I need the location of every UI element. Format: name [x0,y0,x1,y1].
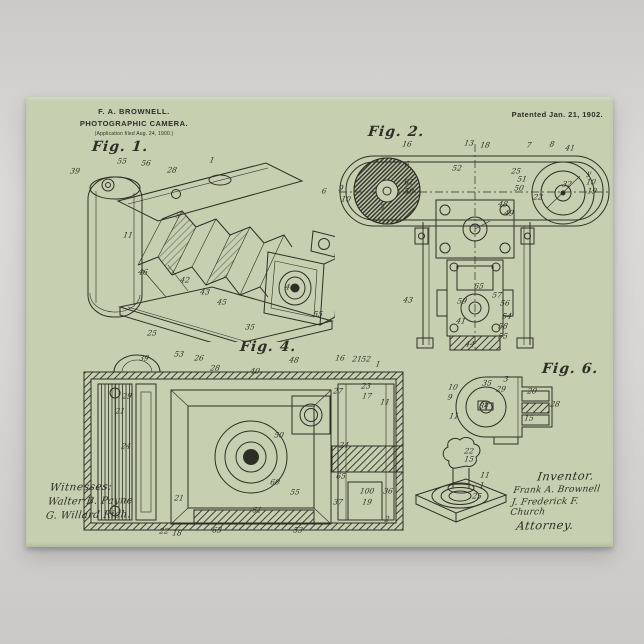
ref-numeral: 5 [175,211,181,219]
ref-numeral: 53 [293,526,304,534]
ref-numeral: 46 [138,268,149,276]
ref-numeral: 10 [341,195,352,203]
ref-numeral: 13 [464,139,475,147]
ref-numeral: 55 [290,488,301,496]
ref-numeral: 100 [359,487,375,495]
ref-numeral: 2 [384,515,390,523]
patent-date: Patented Jan. 21, 1902. [512,110,603,119]
ref-numeral: 24 [121,442,132,450]
ref-numeral: 21 [174,494,185,502]
ref-numeral: 32 [562,180,573,188]
witness-signature-2: G. Willard Rich. [45,509,132,521]
ref-numeral: 34 [479,402,490,410]
ref-numeral: 21 [115,407,126,415]
ref-numeral: 50 [404,187,415,195]
ref-numeral: 60 [270,478,281,486]
inventor-block: Inventor. Frank A. Brownell J. Frederick… [507,468,617,533]
ref-numeral: 22 [533,193,544,201]
ref-numeral: 29 [122,392,133,400]
ref-numeral: 49 [504,209,515,217]
ref-numeral: 3 [503,375,509,383]
ref-numeral: 16 [402,140,413,148]
inventor-name: F. A. BROWNELL. [54,107,214,116]
ref-numeral: 11 [480,471,491,479]
fig2-label: Fig. 2. [367,124,425,140]
ref-numeral: 37 [333,498,344,506]
ref-numeral: 25 [472,492,483,500]
ref-numeral: 6 [404,160,410,168]
ref-numeral: 51 [517,175,528,183]
ref-numeral: 20 [527,387,538,395]
ref-numeral: 22 [159,527,170,535]
ref-numeral: 17 [362,392,373,400]
ref-numeral: 56 [141,159,152,167]
ref-numeral: 18 [172,529,183,537]
ref-numeral: 28 [167,166,178,174]
application-line: (Application filed Aug. 24, 1900.) [54,131,214,137]
ref-numeral: 8 [549,140,555,148]
ref-numeral: 59 [457,297,468,305]
ref-numeral: 43 [200,288,211,296]
inventor-label: Inventor. [536,468,617,483]
ref-numeral: 24 [339,441,350,449]
ref-numeral: 35 [245,323,256,331]
witness-signature-1: Walter B. Payne [47,495,134,507]
ref-numeral: 9 [447,393,453,401]
witnesses-label: Witnesses: [49,480,136,493]
ref-numeral: 10 [586,178,597,186]
ref-numeral: 40 [285,283,296,291]
ref-numeral: 55 [117,157,128,165]
ref-numeral: 16 [335,354,346,362]
ref-numeral: 7 [526,141,532,149]
ref-numeral: 58 [498,322,509,330]
patent-title: PHOTOGRAPHIC CAMERA. [54,119,214,128]
ref-numeral: 41 [456,317,467,325]
ref-numeral: 56 [500,299,511,307]
ref-numeral: 61 [252,506,263,514]
ref-numeral: 11 [449,412,460,420]
witnesses-block: Witnesses: Walter B. Payne G. Willard Ri… [45,480,136,521]
ref-numeral: 26 [194,354,205,362]
ref-numeral: 28 [550,400,561,408]
ref-numeral: 52 [361,355,372,363]
ref-numeral: 53 [174,350,185,358]
ref-numeral: 28 [210,364,221,372]
header-block: F. A. BROWNELL. PHOTOGRAPHIC CAMERA. (Ap… [54,107,214,137]
ref-numeral: 40 [250,367,261,375]
ref-numeral: 39 [70,167,81,175]
ref-numeral: 25 [147,329,158,337]
ref-numeral: 15 [524,414,535,422]
ref-numeral: 39 [139,354,150,362]
ref-numeral: 42 [180,276,191,284]
attorney-signature: J. Frederick F. Church [510,496,614,518]
ref-numeral: 19 [362,498,373,506]
ref-numeral: 27 [333,387,344,395]
ref-numeral: 65 [474,282,485,290]
ref-numeral: 44 [465,340,476,348]
fig5-winding-key-drawing: 221511125 [408,437,513,537]
ref-numeral: 41 [565,144,576,152]
ref-numeral: 11 [380,398,391,406]
ref-numeral: 6 [321,187,327,195]
ref-numeral: 61 [404,178,415,186]
patent-poster: F. A. BROWNELL. PHOTOGRAPHIC CAMERA. (Ap… [26,97,613,547]
fig1-camera-perspective-drawing: 39555628151146424345402535556 [70,147,335,342]
ref-numeral: 35 [482,379,493,387]
ref-numeral: 50 [514,184,525,192]
ref-numeral: 52 [452,164,463,172]
ref-numeral: 63 [212,526,223,534]
ref-numeral: 10 [448,383,459,391]
ref-numeral: 48 [498,200,509,208]
ref-numeral: 19 [587,187,598,195]
ref-numeral: 29 [496,385,507,393]
ref-numeral: 15 [464,455,475,463]
ref-numeral: 11 [123,231,134,239]
ref-numeral: 48 [289,356,300,364]
ref-numeral: 55 [498,332,509,340]
ref-numeral: 18 [480,141,491,149]
ref-numeral: 3 [379,203,385,211]
ref-numeral: 43 [403,296,414,304]
inventor-signature: Frank A. Brownell [513,484,616,496]
attorney-label: Attorney. [515,517,610,533]
ref-numeral: 55 [313,310,324,318]
ref-numeral: 50 [274,431,285,439]
product-background: F. A. BROWNELL. PHOTOGRAPHIC CAMERA. (Ap… [0,0,644,644]
ref-numeral: 23 [361,382,372,390]
ref-numeral: 36 [383,487,394,495]
ref-numeral: 65 [336,472,347,480]
fig2-top-section-drawing: 1318784116652615025515022y10193291034849… [337,140,612,355]
ref-numeral: 54 [502,312,513,320]
ref-numeral: 45 [217,298,228,306]
ref-numeral: 9 [338,184,344,192]
